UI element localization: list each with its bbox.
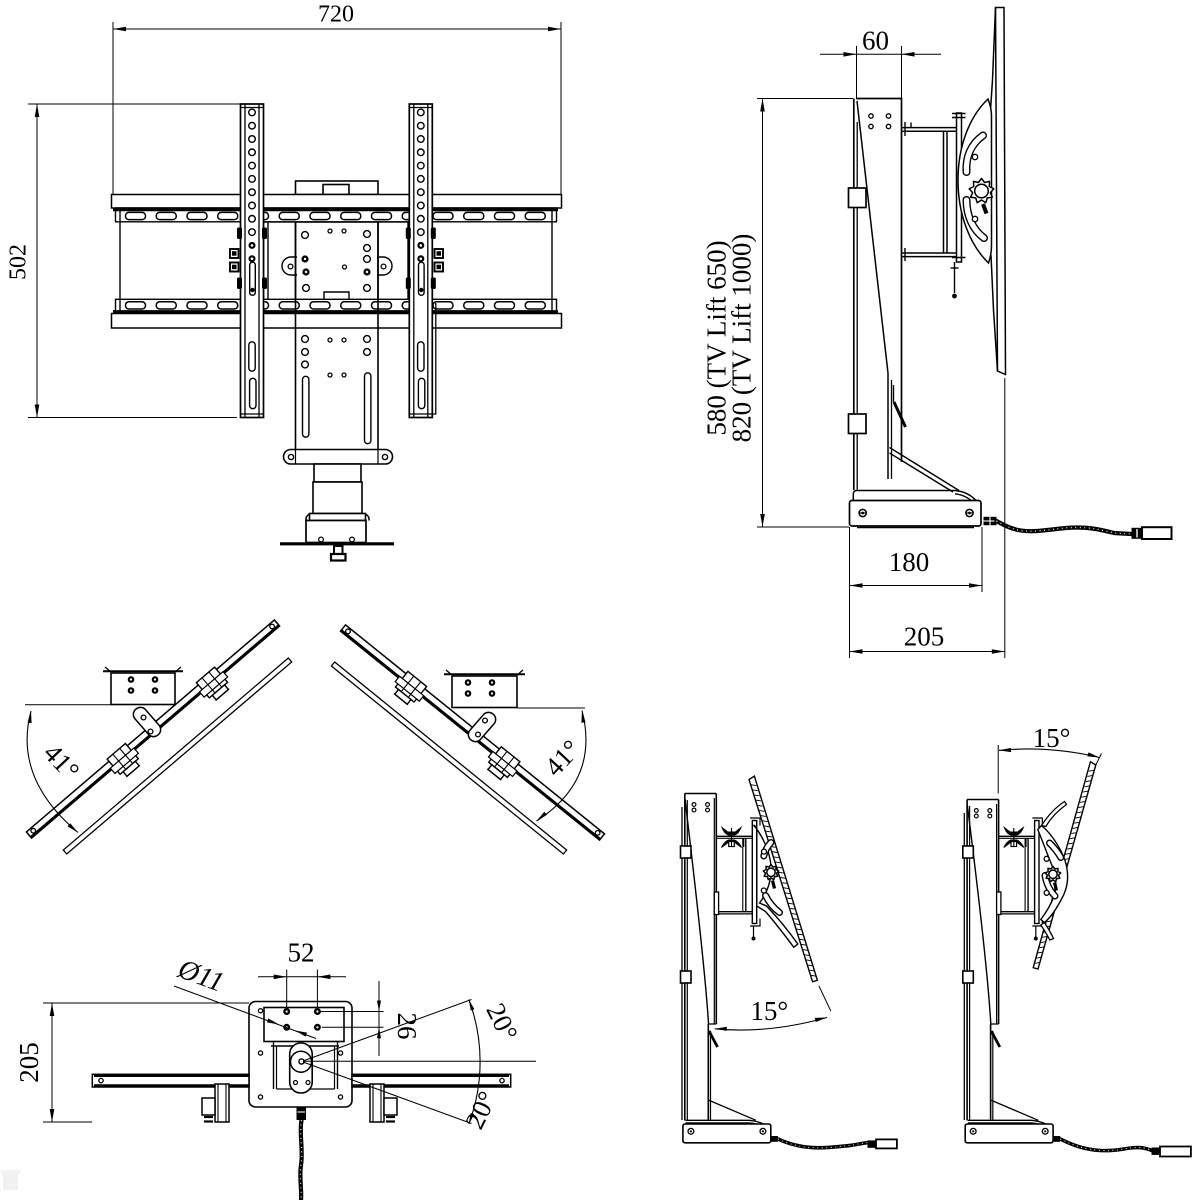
svg-text:205: 205 bbox=[904, 622, 945, 652]
svg-text:26: 26 bbox=[392, 1013, 422, 1040]
svg-text:820 (TV Lift 1000): 820 (TV Lift 1000) bbox=[727, 234, 757, 443]
svg-text:60: 60 bbox=[862, 25, 889, 55]
svg-text:180: 180 bbox=[889, 547, 930, 577]
svg-text:15°: 15° bbox=[750, 996, 788, 1026]
svg-text:205: 205 bbox=[14, 1042, 44, 1083]
svg-text:720: 720 bbox=[318, 2, 354, 28]
svg-text:15°: 15° bbox=[1033, 723, 1071, 753]
svg-text:52: 52 bbox=[288, 938, 315, 968]
svg-text:502: 502 bbox=[6, 244, 32, 280]
